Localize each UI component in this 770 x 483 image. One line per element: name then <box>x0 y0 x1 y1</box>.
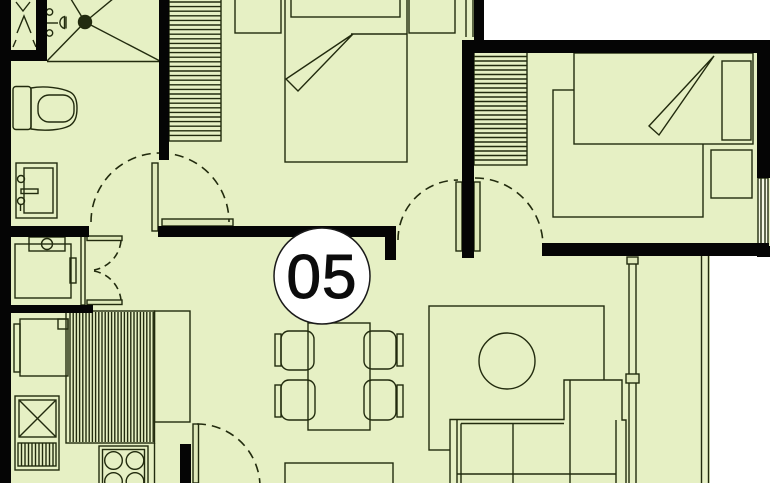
svg-text:05: 05 <box>287 243 358 312</box>
